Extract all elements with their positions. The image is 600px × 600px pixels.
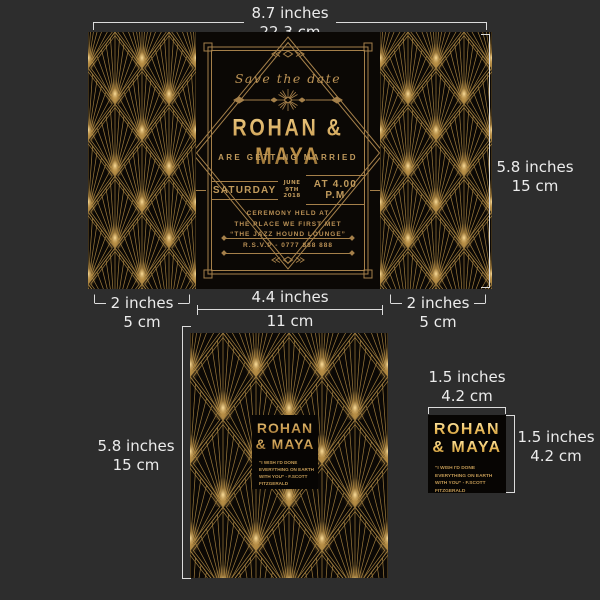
dimension-front-height: 5.8 inches 15 cm bbox=[494, 158, 576, 196]
dimension-right-flap: 2 inches 5 cm bbox=[390, 294, 486, 332]
dimension-left-flap: 2 inches 5 cm bbox=[94, 294, 190, 332]
rsvp-block: R.S.V.P - 0777 888 888 bbox=[196, 236, 380, 255]
back-name-line1: ROHAN bbox=[252, 420, 318, 436]
rsvp-text: R.S.V.P - 0777 888 888 bbox=[196, 242, 380, 249]
tag-quote-line3: WITH YOU” - F.SCOTT FITZGERALD bbox=[435, 480, 506, 495]
dimension-label-inches: 2 inches bbox=[402, 294, 475, 313]
dimension-label-cm: 4.2 cm bbox=[516, 447, 596, 466]
dimension-back-height: 5.8 inches 15 cm bbox=[94, 437, 178, 475]
date-row: SATURDAY JUNE 9TH 2018 AT 4.00 P.M bbox=[196, 175, 380, 205]
front-left-flap bbox=[88, 32, 196, 289]
dimension-center-width: 4.4 inches 11 cm bbox=[197, 288, 383, 331]
dimension-tag-width: 1.5 inches 4.2 cm bbox=[420, 368, 514, 406]
dimension-label-inches: 8.7 inches bbox=[244, 4, 335, 23]
dimension-bracket-right-flap: 2 inches bbox=[390, 294, 486, 313]
artdeco-pattern-left bbox=[88, 32, 196, 289]
dimension-label-cm: 5 cm bbox=[94, 313, 190, 332]
tag-quote-line1: “I WISH I'D DONE bbox=[435, 465, 506, 473]
date-stack: JUNE 9TH 2018 bbox=[283, 180, 300, 200]
back-center-box: ROHAN & MAYA “I WISH I'D DONE EVERYTHING… bbox=[252, 415, 318, 489]
couple-names: ROHAN & MAYA bbox=[205, 113, 371, 170]
front-right-flap bbox=[380, 32, 492, 289]
back-name-line2: & MAYA bbox=[252, 436, 318, 452]
dimension-label-cm: 11 cm bbox=[197, 312, 383, 331]
venue-line-1: CEREMONY HELD AT bbox=[196, 209, 380, 220]
dimension-label-inches: 1.5 inches bbox=[516, 428, 596, 447]
venue-line-2: THE PLACE WE FIRST MET bbox=[196, 220, 380, 231]
dimension-bracket-left-flap: 2 inches bbox=[94, 294, 190, 313]
tag-name-line2: & MAYA bbox=[428, 439, 506, 457]
back-quote: “I WISH I'D DONE EVERYTHING ON EARTH WIT… bbox=[259, 459, 318, 487]
artdeco-pattern-right bbox=[380, 32, 492, 289]
back-quote-line2: EVERYTHING ON EARTH bbox=[259, 466, 318, 473]
dimension-label-inches: 5.8 inches bbox=[94, 437, 178, 456]
dimension-label-cm: 5 cm bbox=[390, 313, 486, 332]
tag-card: ROHAN & MAYA “I WISH I'D DONE EVERYTHING… bbox=[428, 415, 506, 493]
dimension-label-inches: 4.4 inches bbox=[197, 288, 383, 307]
dimension-bracket-center bbox=[197, 309, 383, 310]
dimension-tag-height: 1.5 inches 4.2 cm bbox=[516, 428, 596, 466]
tag-name-line1: ROHAN bbox=[428, 421, 506, 439]
dimension-label-cm: 15 cm bbox=[94, 456, 178, 475]
front-center-panel: Save the date ROHAN & MAYA ARE GETTING M… bbox=[196, 32, 380, 289]
dimension-label-inches: 2 inches bbox=[106, 294, 179, 313]
dimension-bracket-front-height bbox=[481, 34, 490, 288]
invitation-front-card: Save the date ROHAN & MAYA ARE GETTING M… bbox=[88, 32, 492, 289]
dimension-label-inches: 5.8 inches bbox=[494, 158, 576, 177]
year-text: 2018 bbox=[283, 193, 300, 200]
tag-quote: “I WISH I'D DONE EVERYTHING ON EARTH WIT… bbox=[435, 465, 506, 495]
dimension-bracket-back-height bbox=[182, 326, 191, 579]
dimension-label-cm: 15 cm bbox=[494, 177, 576, 196]
dimension-label-cm: 4.2 cm bbox=[420, 387, 514, 406]
back-quote-line1: “I WISH I'D DONE bbox=[259, 459, 318, 466]
getting-married-text: ARE GETTING MARRIED bbox=[196, 153, 380, 162]
dimension-label-inches: 1.5 inches bbox=[420, 368, 514, 387]
rsvp-rule-top bbox=[222, 236, 354, 240]
invitation-back-card: ROHAN & MAYA “I WISH I'D DONE EVERYTHING… bbox=[190, 333, 388, 578]
save-the-date-text: Save the date bbox=[196, 71, 380, 86]
dimension-bracket-top: 8.7 inches bbox=[93, 2, 487, 23]
time-text: AT 4.00 P.M bbox=[306, 175, 365, 205]
dimension-bracket-tag-width bbox=[428, 407, 506, 408]
rsvp-rule-bottom bbox=[222, 251, 354, 255]
back-quote-line3: WITH YOU” - F.SCOTT FITZGERALD bbox=[259, 473, 318, 487]
dimension-bracket-tag-height bbox=[506, 415, 515, 493]
day-text: SATURDAY bbox=[211, 181, 279, 200]
tag-quote-line2: EVERYTHING ON EARTH bbox=[435, 473, 506, 481]
